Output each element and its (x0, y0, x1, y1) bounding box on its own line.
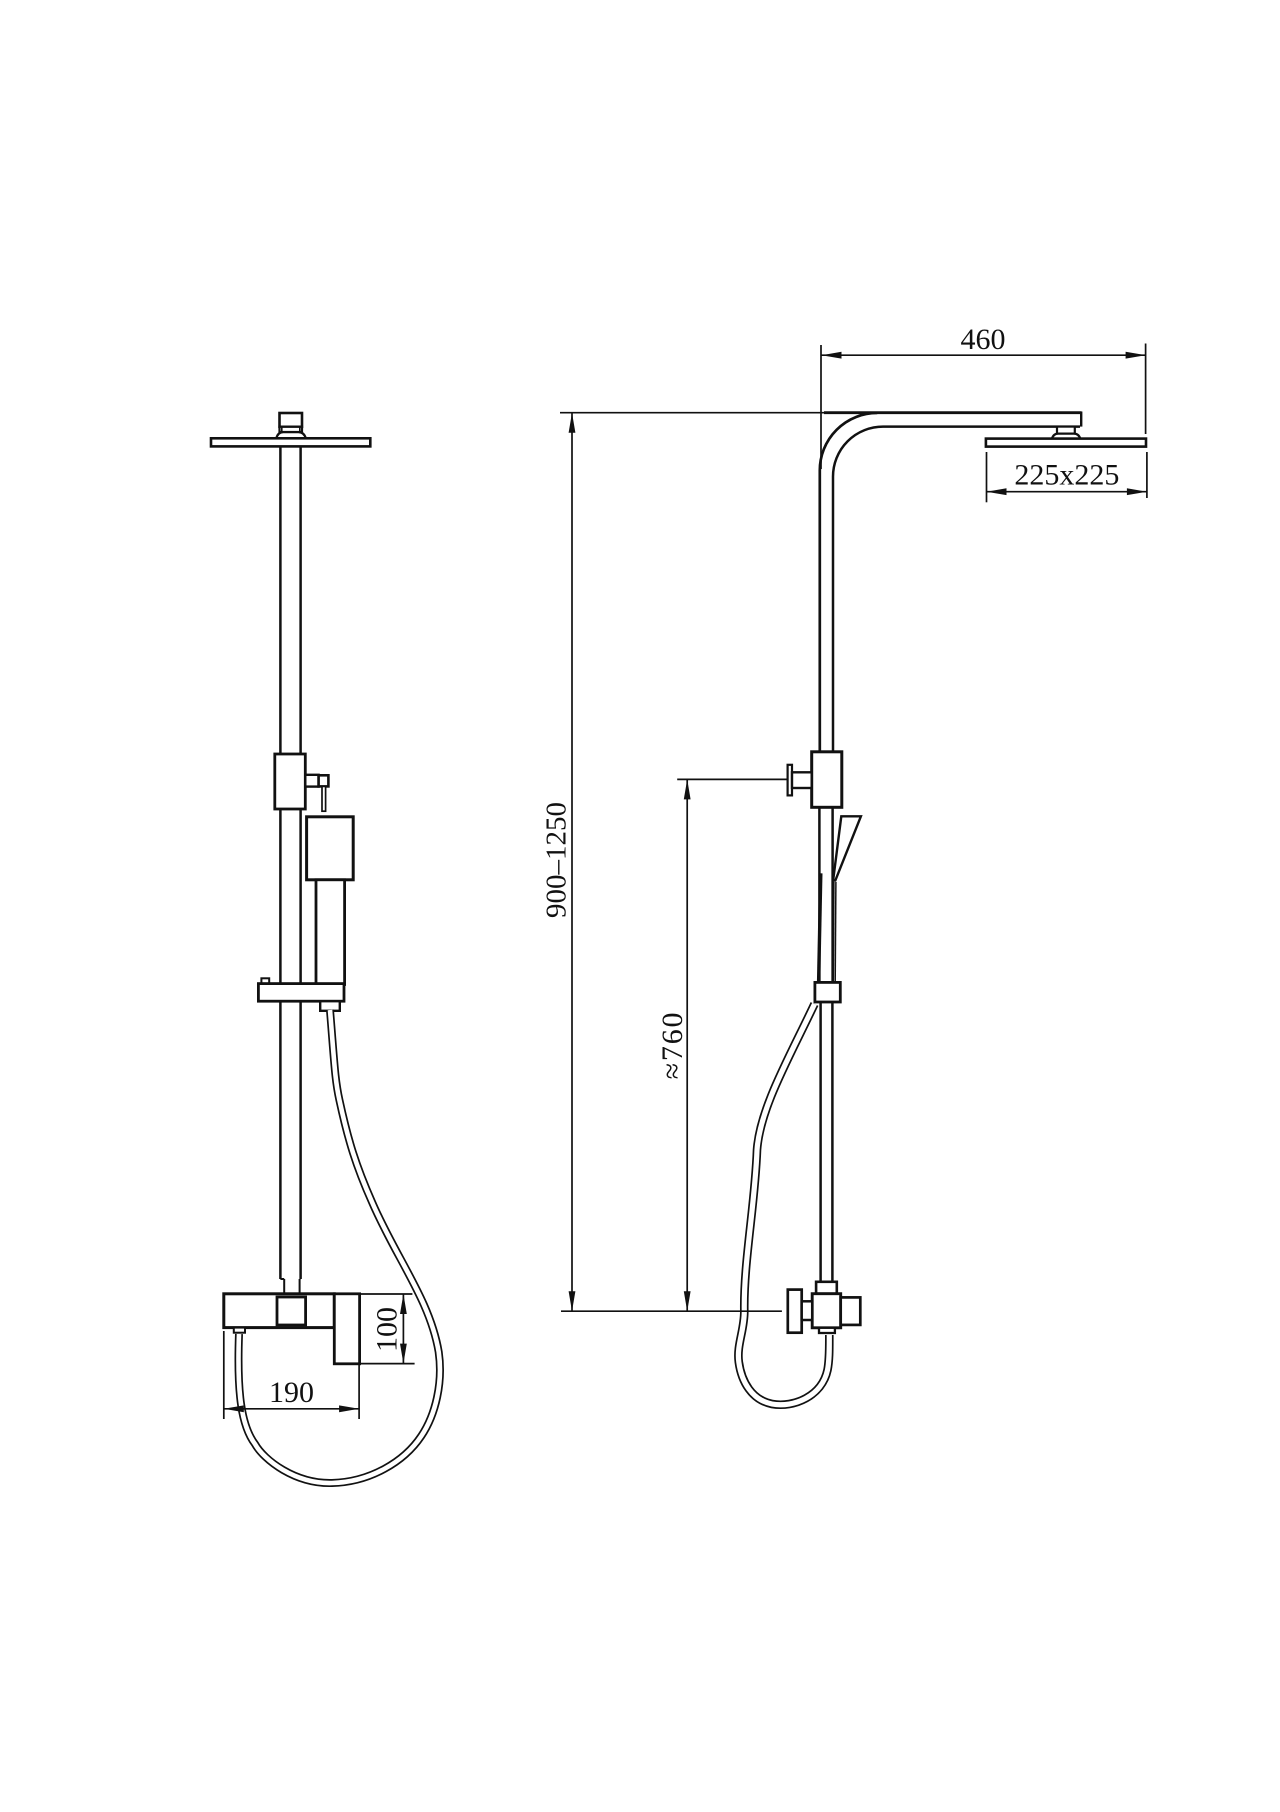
svg-text:≈760: ≈760 (656, 1011, 689, 1080)
svg-text:225x225: 225x225 (1014, 458, 1119, 491)
svg-text:460: 460 (961, 323, 1006, 356)
svg-text:100: 100 (371, 1307, 404, 1352)
svg-text:190: 190 (269, 1376, 314, 1409)
svg-text:900–1250: 900–1250 (541, 802, 573, 918)
